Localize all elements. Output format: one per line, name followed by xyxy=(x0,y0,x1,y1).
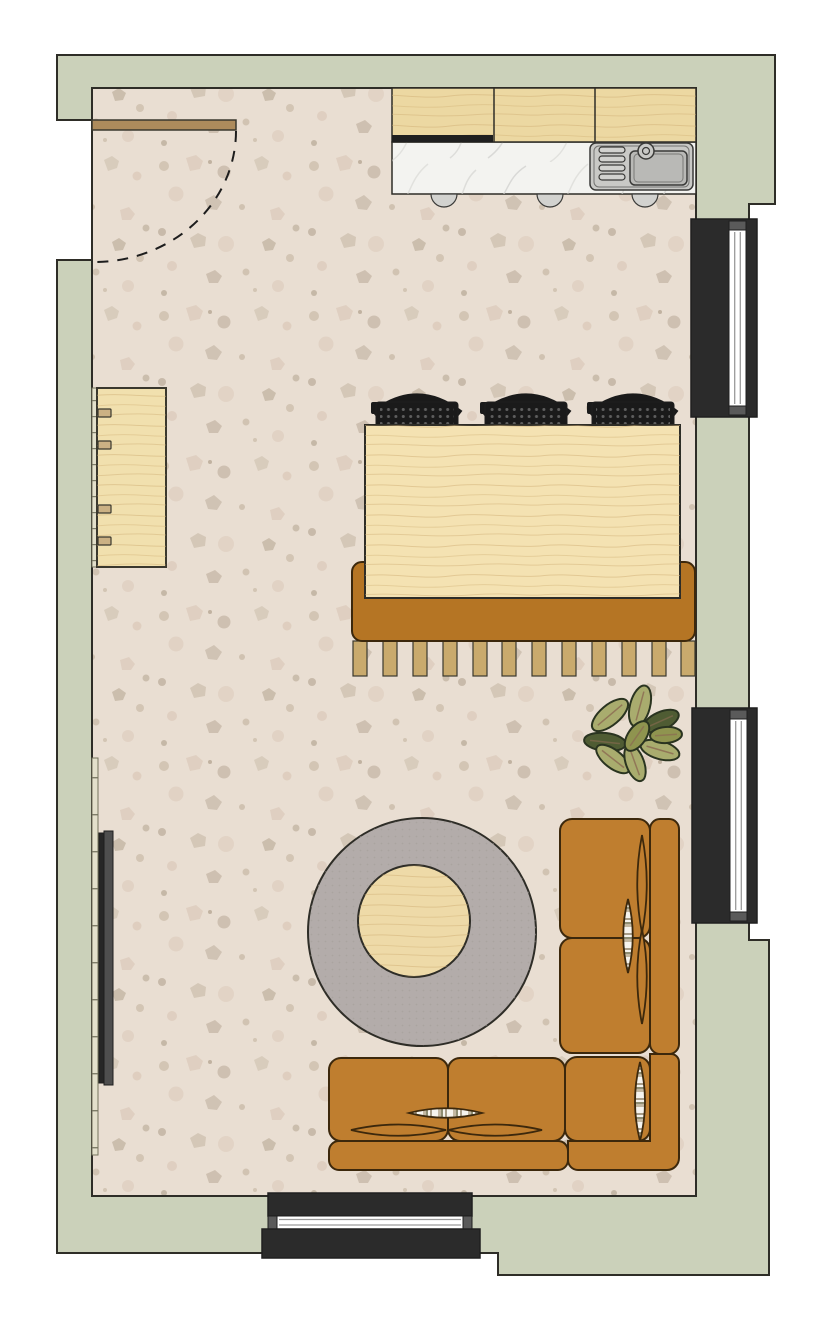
window-cap xyxy=(730,710,747,719)
dining-chair[interactable] xyxy=(371,398,460,429)
tv[interactable] xyxy=(99,831,113,1085)
dining-chairs xyxy=(371,398,676,429)
bolster-cushion xyxy=(637,835,647,933)
sideboard-handle xyxy=(98,441,111,449)
perforated-seat-texture xyxy=(596,405,670,425)
sideboard-handle xyxy=(98,505,111,513)
window-cap xyxy=(730,912,747,921)
cabinet-grain xyxy=(392,88,696,142)
hood-strip xyxy=(392,135,493,142)
window-glass xyxy=(730,719,747,912)
dining-table[interactable] xyxy=(365,425,680,598)
window-bottom[interactable] xyxy=(262,1193,480,1258)
tv-screen xyxy=(104,831,113,1085)
sideboard-handle xyxy=(98,409,111,417)
perforated-seat-texture xyxy=(380,405,454,425)
window-cap xyxy=(268,1216,277,1229)
drain-slot xyxy=(599,174,625,180)
window-right-top[interactable] xyxy=(691,219,757,417)
dining-chair[interactable] xyxy=(480,398,569,429)
window-cap xyxy=(463,1216,472,1229)
sideboard-handle xyxy=(98,537,111,545)
kitchen-run[interactable] xyxy=(392,88,696,207)
kitchen-sink[interactable] xyxy=(590,143,693,190)
window-glass xyxy=(268,1216,472,1229)
perforated-seat-texture xyxy=(489,405,563,425)
table-grain xyxy=(365,425,680,598)
sofa-backrest-right xyxy=(650,819,679,1054)
window-cap xyxy=(729,221,746,230)
striped-pillow xyxy=(623,899,633,973)
drain-slot xyxy=(599,147,625,153)
coffee-table-grain xyxy=(358,865,470,977)
door-leaf[interactable] xyxy=(92,120,236,130)
dining-chair[interactable] xyxy=(587,398,676,429)
striped-pillow xyxy=(409,1108,482,1118)
window-glass xyxy=(729,230,746,406)
window-cap xyxy=(729,406,746,415)
coffee-table[interactable] xyxy=(358,865,470,977)
sideboard[interactable] xyxy=(97,388,166,567)
sink-basin xyxy=(630,151,687,185)
window-flange xyxy=(262,1229,480,1258)
faucet-icon xyxy=(638,143,654,159)
window-flange xyxy=(268,1193,472,1216)
window-right-bottom[interactable] xyxy=(692,708,757,923)
sofa-seat[interactable] xyxy=(560,938,650,1053)
drain-slot xyxy=(599,165,625,171)
floor-plan-canvas xyxy=(0,0,833,1330)
sofa-backrest-bottom xyxy=(329,1141,568,1170)
drain-slot xyxy=(599,156,625,162)
